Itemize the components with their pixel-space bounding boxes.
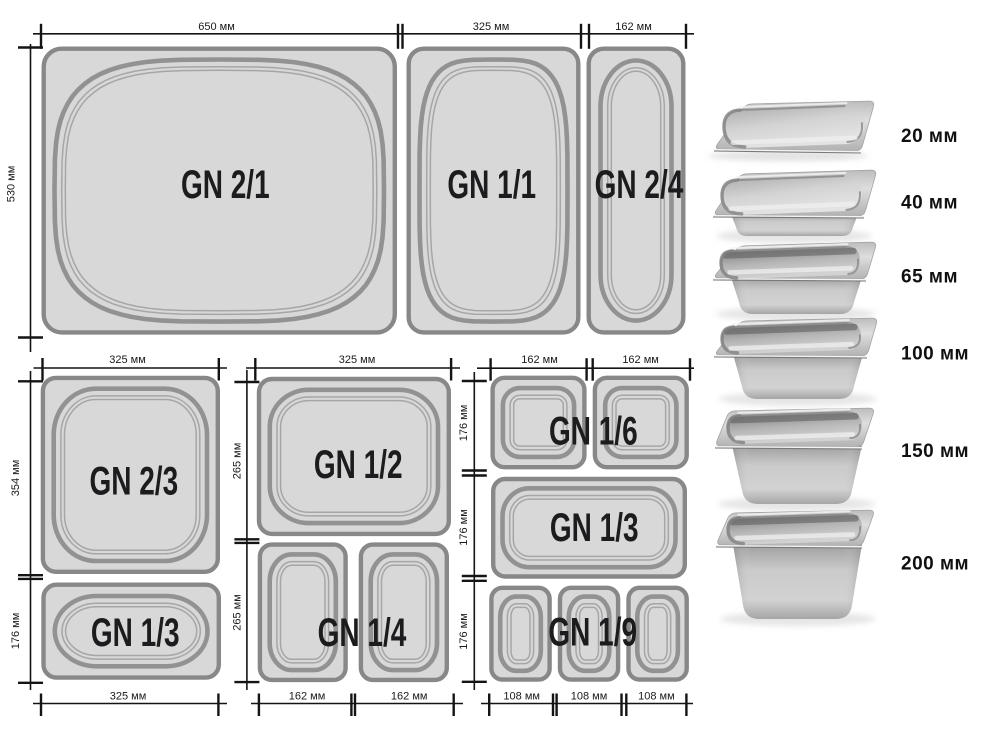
- svg-text:150 мм: 150 мм: [901, 441, 969, 462]
- svg-text:GN 1/2: GN 1/2: [314, 443, 403, 487]
- svg-text:GN 1/3: GN 1/3: [91, 611, 180, 655]
- svg-text:GN 1/1: GN 1/1: [447, 163, 536, 207]
- svg-text:GN 2/1: GN 2/1: [181, 163, 270, 207]
- svg-text:GN 2/3: GN 2/3: [89, 460, 178, 504]
- svg-text:325 мм: 325 мм: [110, 690, 147, 702]
- svg-text:354 мм: 354 мм: [10, 460, 22, 497]
- svg-text:162 мм: 162 мм: [289, 690, 326, 702]
- svg-text:GN 1/9: GN 1/9: [548, 611, 637, 655]
- svg-text:265 мм: 265 мм: [231, 594, 243, 631]
- svg-text:100 мм: 100 мм: [901, 344, 969, 365]
- svg-text:162 мм: 162 мм: [391, 690, 428, 702]
- svg-text:108 мм: 108 мм: [571, 690, 608, 702]
- svg-text:108 мм: 108 мм: [503, 690, 540, 702]
- svg-text:325 мм: 325 мм: [109, 354, 146, 366]
- svg-text:200 мм: 200 мм: [901, 554, 969, 575]
- svg-text:GN 2/4: GN 2/4: [595, 163, 684, 207]
- svg-text:265 мм: 265 мм: [231, 443, 243, 480]
- svg-text:176 мм: 176 мм: [458, 405, 470, 442]
- svg-text:GN 1/3: GN 1/3: [550, 506, 639, 550]
- svg-text:176 мм: 176 мм: [458, 613, 470, 650]
- svg-text:108 мм: 108 мм: [638, 690, 675, 702]
- svg-text:162 мм: 162 мм: [521, 354, 558, 366]
- svg-text:530 мм: 530 мм: [5, 166, 17, 203]
- svg-text:162 мм: 162 мм: [622, 354, 659, 366]
- svg-text:325 мм: 325 мм: [339, 354, 376, 366]
- svg-text:325 мм: 325 мм: [473, 21, 510, 33]
- svg-text:650 мм: 650 мм: [198, 21, 235, 33]
- svg-text:GN 1/4: GN 1/4: [318, 611, 407, 655]
- svg-text:176 мм: 176 мм: [458, 509, 470, 546]
- svg-text:GN 1/6: GN 1/6: [549, 410, 638, 454]
- svg-text:176 мм: 176 мм: [10, 613, 22, 650]
- svg-text:20 мм: 20 мм: [901, 126, 958, 147]
- svg-text:162 мм: 162 мм: [615, 21, 652, 33]
- svg-text:65 мм: 65 мм: [901, 267, 958, 288]
- svg-text:40 мм: 40 мм: [901, 193, 958, 214]
